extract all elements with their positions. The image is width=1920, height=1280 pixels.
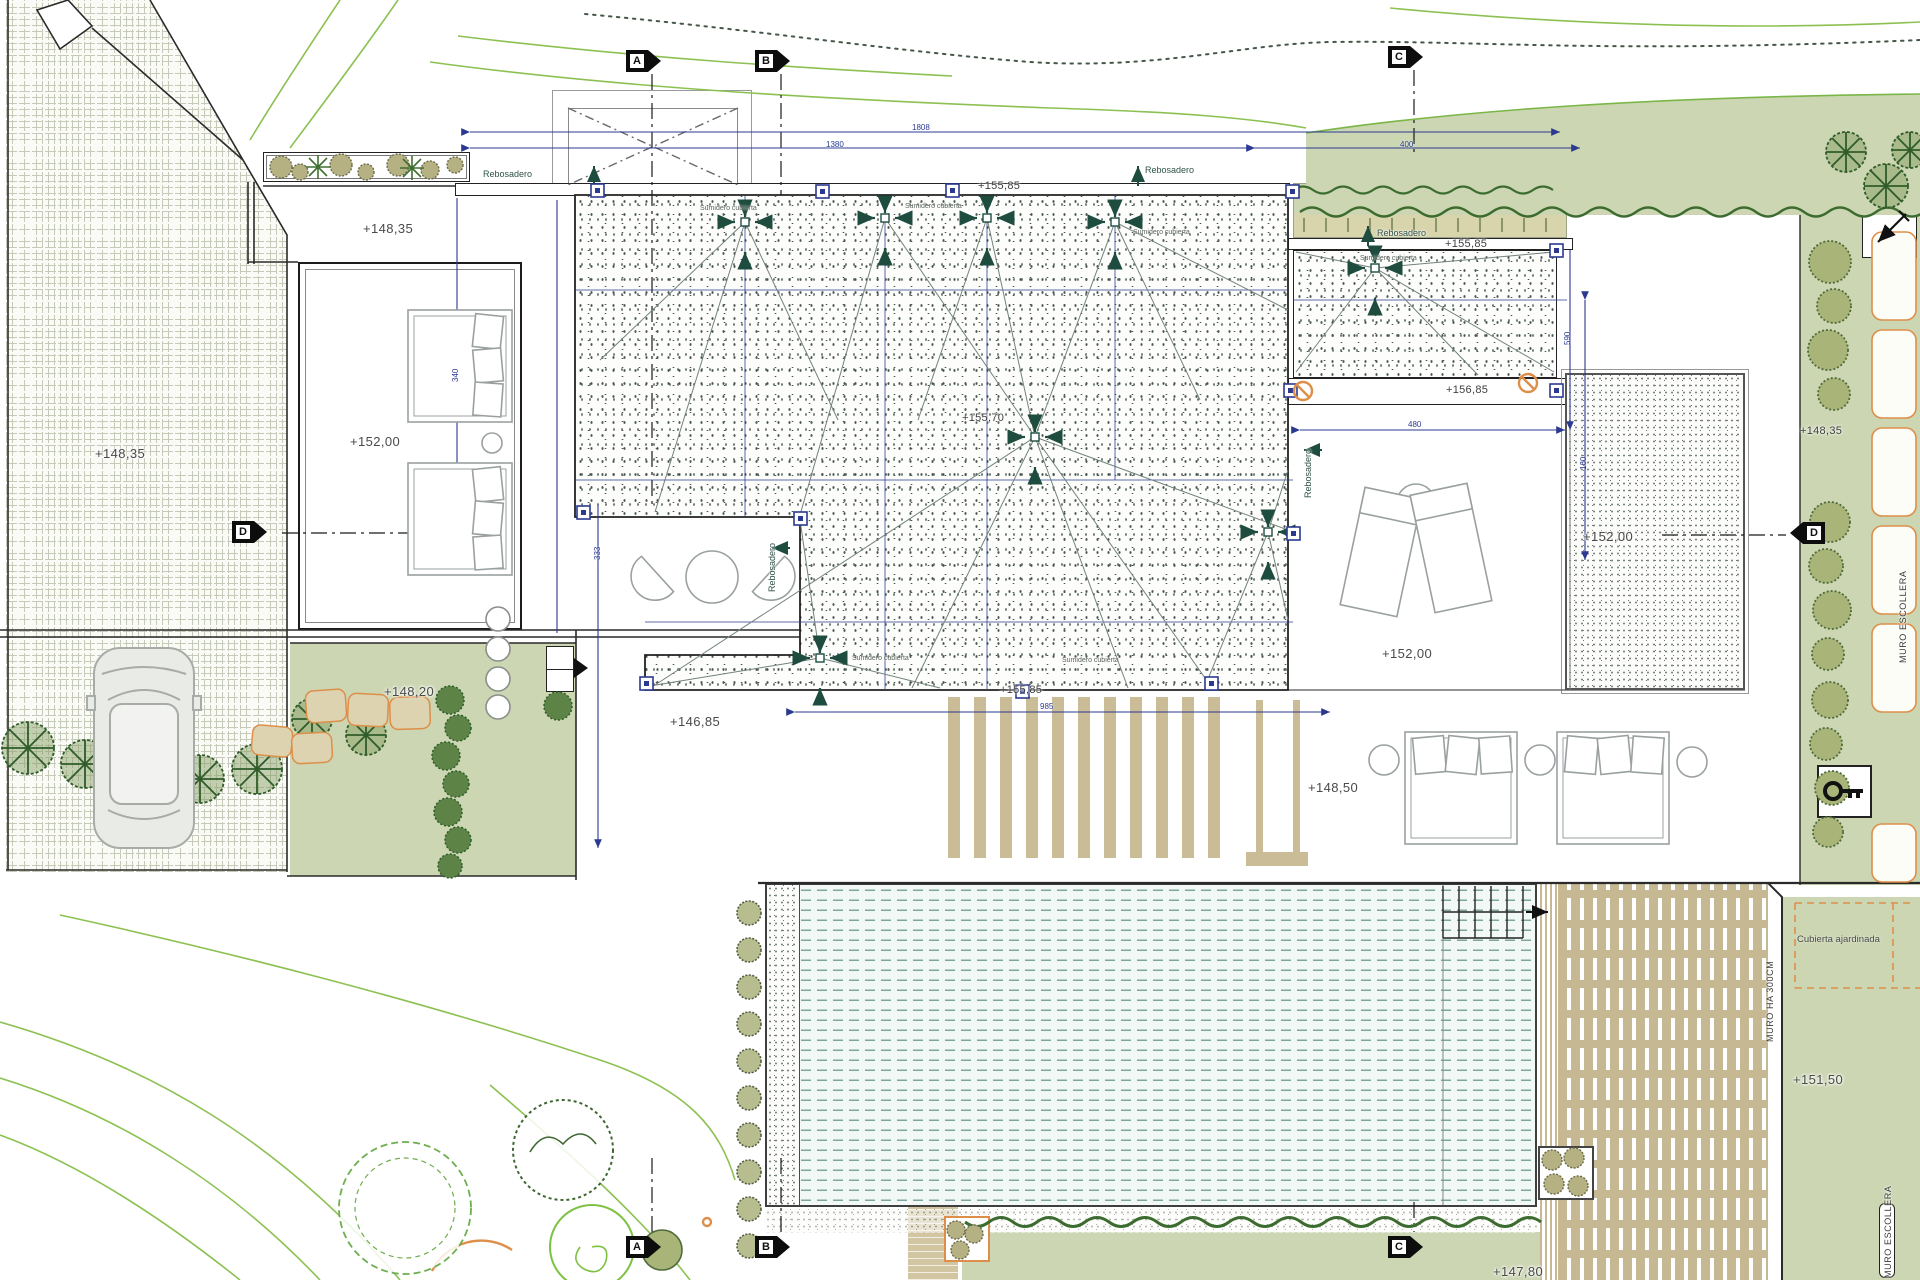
pergola-slat: [1078, 697, 1090, 858]
parapet-wing: [1288, 238, 1573, 250]
dim-480: 480: [1408, 421, 1421, 429]
muro-escollera: MURO ESCOLLERA: [1899, 571, 1908, 663]
sumidero-1: Sumidero cubierta: [700, 205, 757, 212]
pool-overflow-channel: [767, 885, 800, 1205]
planter-pool-corner: [1538, 1146, 1594, 1200]
section-d-left: D: [232, 521, 267, 543]
rebosadero-4: Rebosadero: [768, 543, 777, 592]
level-roof-south: +155,85: [1000, 685, 1042, 696]
section-a-bottom-flag-icon: [648, 1236, 661, 1258]
sunbed-icons: [1369, 732, 1707, 844]
dim-333: 333: [594, 547, 602, 560]
wing-hedge-base: [1294, 213, 1566, 237]
level-bottom: +147,80: [1493, 1265, 1543, 1278]
muro-escollera-2: MURO ESCOLLERA: [1884, 1186, 1893, 1278]
section-d-left-letter: D: [232, 521, 254, 543]
pergola-corner-bar-1: [1256, 700, 1263, 852]
service-box: [546, 646, 574, 692]
level-wing-roof: +155,85: [1445, 239, 1487, 250]
dim-985: 985: [1040, 703, 1053, 711]
slat-pergola: [948, 697, 1228, 858]
wood-deck: [1558, 883, 1768, 1280]
section-d-right-flag-icon: [1790, 522, 1803, 544]
section-c-bottom-flag-icon: [1410, 1236, 1423, 1258]
level-room-terrace: +152,00: [350, 435, 400, 448]
section-c-bottom: C: [1388, 1236, 1423, 1258]
pool-water: [801, 885, 1535, 1205]
driveway-paving: [6, 0, 287, 872]
room-left-inner-wall: [305, 269, 515, 623]
wing-roof: [1293, 250, 1557, 378]
pergola-corner-bar-2: [1293, 700, 1300, 852]
bush-column-pool: [737, 901, 761, 1258]
pergola-slat: [1130, 697, 1142, 858]
level-wing-strip: +156,85: [1446, 385, 1488, 396]
rebosadero-2: Rebosadero: [1145, 166, 1194, 175]
planter-orange: [944, 1216, 990, 1262]
section-c-bottom-letter: C: [1388, 1236, 1410, 1258]
section-a-bottom: A: [626, 1236, 661, 1258]
level-lawn: +148,20: [384, 685, 434, 698]
rebosadero-3: Rebosadero: [1377, 229, 1426, 238]
rebosadero-1: Rebosadero: [483, 170, 532, 179]
pergola-slat: [1104, 697, 1116, 858]
section-d-right-letter: D: [1803, 522, 1825, 544]
key-box: [1817, 765, 1872, 818]
level-courtyard: +148,35: [363, 222, 413, 235]
planter-strip: [263, 152, 470, 182]
sumidero-2: Sumidero cubierta: [905, 203, 962, 210]
level-sunbed-terrace: +148,50: [1308, 781, 1358, 794]
level-lower-court: +146,85: [670, 715, 720, 728]
section-d-right: D: [1790, 522, 1825, 544]
dim-160: 160: [1580, 457, 1588, 470]
pergola-slat: [1182, 697, 1194, 858]
section-b-bottom-flag-icon: [777, 1236, 790, 1258]
muro-ha-300: MURO HA 300CM: [1766, 961, 1775, 1042]
section-c-top: C: [1388, 46, 1423, 68]
level-garden-square: +152,00: [1583, 530, 1633, 543]
pool-surround-strip: [765, 1209, 1537, 1233]
dim-590: 590: [1564, 332, 1572, 345]
pergola-slat: [1208, 697, 1220, 858]
pergola-slat: [948, 697, 960, 858]
wing-roof-strip: [1288, 378, 1573, 405]
sumidero-3: Sumidero cubierta: [1133, 229, 1190, 236]
deck-edge-strip: [1540, 883, 1558, 1280]
site-plan-canvas: +148,35+148,35+152,00+148,20+146,85+155,…: [0, 0, 1920, 1280]
dim-1808: 1808: [912, 124, 930, 132]
pergola-slat: [1052, 697, 1064, 858]
section-b-bottom: B: [755, 1236, 790, 1258]
lawn-left: [290, 643, 576, 876]
section-b-top-letter: B: [755, 50, 777, 72]
sumidero-6: Sumidero cubierta: [1062, 657, 1119, 664]
section-c-top-flag-icon: [1410, 46, 1423, 68]
section-a-top: A: [626, 50, 661, 72]
section-b-top-flag-icon: [777, 50, 790, 72]
dim-400: 400: [1400, 141, 1413, 149]
pergola-slat: [974, 697, 986, 858]
section-a-top-flag-icon: [648, 50, 661, 72]
pergola-slat: [1156, 697, 1168, 858]
sumidero-5: Sumidero cubierta: [852, 655, 909, 662]
service-arrow-icon: [574, 658, 588, 678]
lounger-icons: [1340, 483, 1492, 616]
cubierta-ajardinada: Cubierta ajardinada: [1797, 935, 1880, 945]
pool: [765, 883, 1537, 1207]
section-a-top-letter: A: [626, 50, 648, 72]
dim-340: 340: [452, 369, 460, 382]
parapet-north: [455, 183, 1290, 196]
level-parapet: +155,85: [978, 181, 1020, 192]
pergola-slat: [1026, 697, 1038, 858]
dim-1380: 1380: [826, 141, 844, 149]
pergola-slat: [1000, 697, 1012, 858]
bottom-garden-band: [962, 1232, 1540, 1280]
rebosadero-5: Rebosadero: [1304, 449, 1313, 498]
sumidero-4: Sumidero cubierta: [1360, 255, 1417, 262]
room-left: [298, 262, 522, 630]
section-b-bottom-letter: B: [755, 1236, 777, 1258]
level-right-strip: +148,35: [1800, 426, 1842, 437]
level-roof-center: +155,70: [962, 413, 1004, 424]
section-b-top: B: [755, 50, 790, 72]
section-a-bottom-letter: A: [626, 1236, 648, 1258]
wing-hedge: [1293, 183, 1567, 238]
level-green-roof: +151,50: [1793, 1073, 1843, 1086]
main-roof: [575, 195, 1288, 690]
section-d-left-flag-icon: [254, 521, 267, 543]
skylight-inner: [568, 108, 738, 185]
arrow-box: [1862, 203, 1917, 258]
level-terrace-right: +152,00: [1382, 647, 1432, 660]
level-driveway: +148,35: [95, 447, 145, 460]
green-roof-area: [1782, 897, 1920, 1280]
section-c-top-letter: C: [1388, 46, 1410, 68]
pergola-corner-bar-3: [1246, 852, 1308, 866]
